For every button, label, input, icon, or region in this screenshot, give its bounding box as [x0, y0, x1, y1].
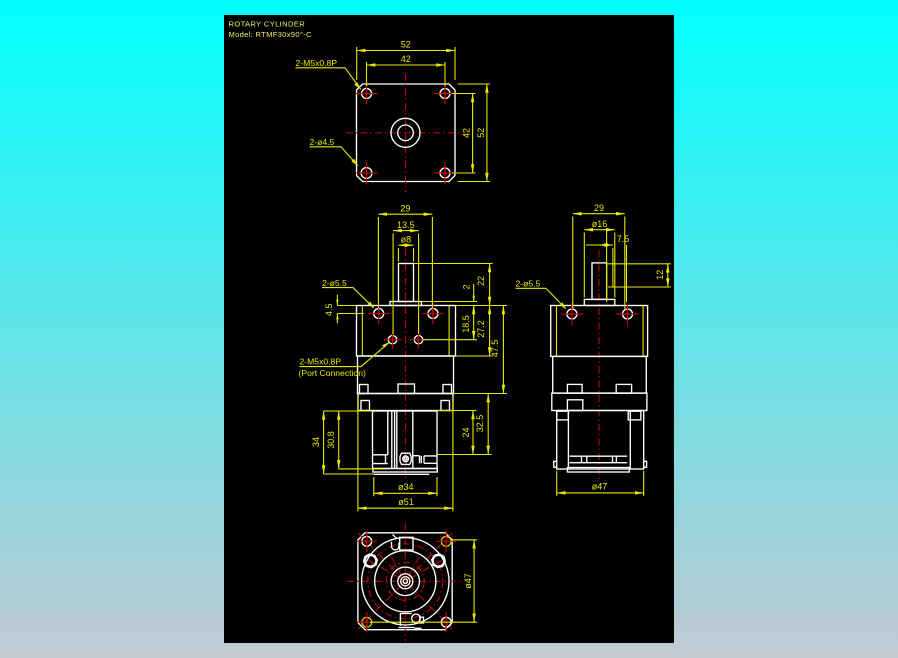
- svg-text:2-ø5.5: 2-ø5.5: [322, 278, 347, 288]
- svg-text:42: 42: [401, 54, 411, 64]
- svg-text:(Port Connection): (Port Connection): [299, 368, 366, 378]
- svg-text:ROTARY CYLINDER: ROTARY CYLINDER: [229, 19, 306, 28]
- svg-text:ø16: ø16: [592, 219, 608, 229]
- svg-text:ø8: ø8: [401, 235, 412, 245]
- svg-text:29: 29: [400, 204, 410, 214]
- svg-text:ø47: ø47: [463, 573, 473, 589]
- svg-text:ø34: ø34: [398, 482, 414, 492]
- svg-text:2: 2: [462, 284, 472, 289]
- svg-text:2-M5x0.8P: 2-M5x0.8P: [296, 58, 338, 68]
- svg-text:29: 29: [594, 203, 604, 213]
- svg-text:27.2: 27.2: [476, 320, 486, 338]
- svg-text:52: 52: [401, 40, 411, 50]
- svg-text:7.5: 7.5: [617, 234, 630, 244]
- svg-text:42: 42: [462, 128, 472, 138]
- svg-text:13.5: 13.5: [397, 220, 415, 230]
- svg-text:52: 52: [476, 128, 486, 138]
- svg-text:2-ø4.5: 2-ø4.5: [310, 137, 335, 147]
- svg-text:22: 22: [476, 276, 486, 286]
- svg-text:Model: RTMF30x90°-C: Model: RTMF30x90°-C: [229, 30, 313, 39]
- svg-text:ø47: ø47: [592, 482, 608, 492]
- svg-text:2-ø5.5: 2-ø5.5: [516, 279, 541, 289]
- svg-text:32.5: 32.5: [475, 415, 485, 433]
- svg-text:34: 34: [311, 437, 321, 447]
- svg-text:ø51: ø51: [398, 497, 414, 507]
- svg-text:2-M5x0.8P: 2-M5x0.8P: [300, 357, 342, 367]
- svg-text:24: 24: [461, 427, 471, 437]
- svg-text:47.5: 47.5: [490, 340, 500, 358]
- svg-text:12: 12: [655, 270, 665, 280]
- svg-text:30.8: 30.8: [326, 431, 336, 449]
- svg-text:18.5: 18.5: [461, 315, 471, 333]
- svg-text:4.5: 4.5: [324, 304, 334, 317]
